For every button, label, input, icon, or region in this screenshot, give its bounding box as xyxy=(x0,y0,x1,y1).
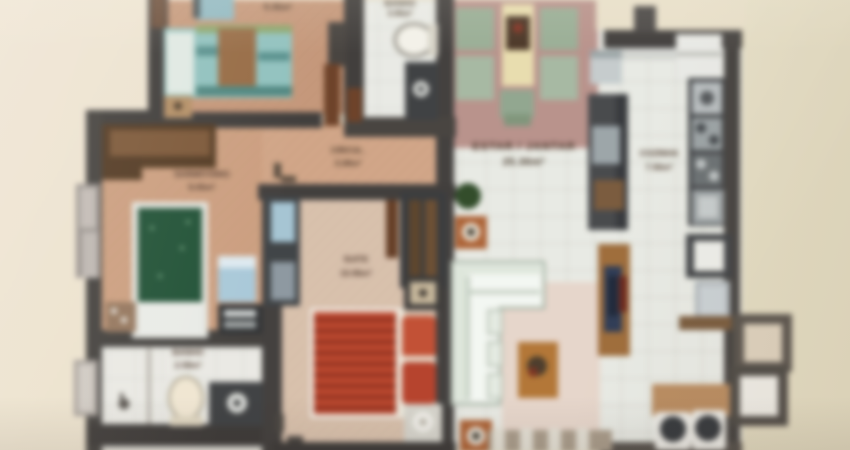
svg-text:BANHO: BANHO xyxy=(172,347,204,357)
svg-text:7.56m²: 7.56m² xyxy=(646,162,673,172)
svg-text:ESTAR / JANTAR: ESTAR / JANTAR xyxy=(472,141,575,153)
svg-text:COZINHA: COZINHA xyxy=(640,148,679,158)
svg-text:3.08m²: 3.08m² xyxy=(335,158,362,168)
svg-text:25.36m²: 25.36m² xyxy=(503,156,546,168)
svg-text:DORMITÓRIO: DORMITÓRIO xyxy=(174,168,230,179)
svg-text:CIRCUL.: CIRCUL. xyxy=(331,145,365,155)
svg-text:2.58m²: 2.58m² xyxy=(175,360,202,370)
svg-text:10.96m²: 10.96m² xyxy=(340,268,372,278)
svg-text:9.36m²: 9.36m² xyxy=(264,2,293,12)
svg-text:SUITE: SUITE xyxy=(343,254,368,264)
svg-text:8.06m²: 8.06m² xyxy=(189,182,216,192)
svg-text:BANHO: BANHO xyxy=(384,0,416,8)
svg-text:3.06m²: 3.06m² xyxy=(387,9,413,18)
